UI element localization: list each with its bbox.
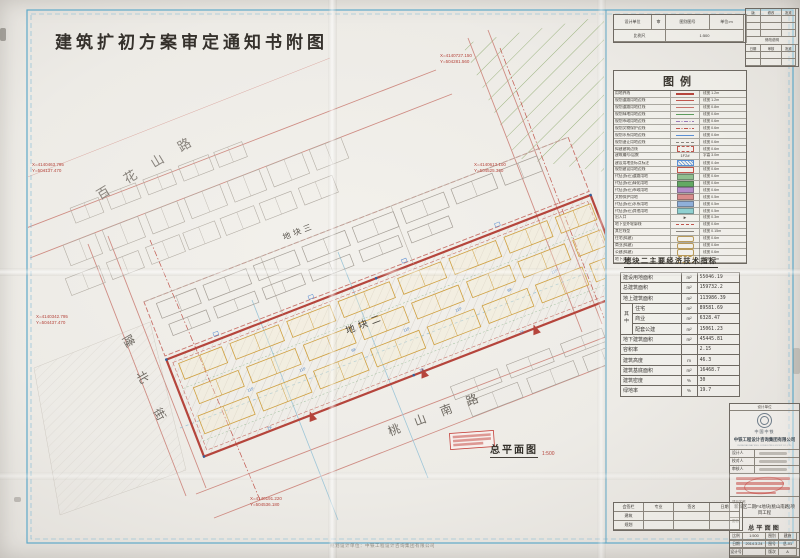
revision-cell <box>761 23 782 30</box>
revision-cell: 修改 <box>761 9 782 16</box>
green-space-hatch <box>462 16 604 172</box>
indicator-unit: m² <box>681 283 697 293</box>
legend-item-spec: 线宽 0.6m <box>700 126 744 131</box>
signoff-cell: 签名 <box>674 503 710 512</box>
signature-row: 设计人 <box>730 450 799 458</box>
map-label: X=4140463.795 <box>32 162 64 167</box>
indicator-row: 地下建筑面积m²45445.81 <box>621 334 740 344</box>
revision-cell: 版 <box>746 9 761 16</box>
legend-swatch <box>670 208 700 214</box>
legend: 图例 用地界线线宽 1.2m规划道路用地边线线宽 1.2m规划道路用地红线线宽 … <box>613 70 747 264</box>
design-unit-label: 设计单位 <box>730 404 799 411</box>
map-label: Y=504137.470 <box>32 168 62 173</box>
revision-table: 版修改批准修改说明日期审核批准 <box>745 8 799 67</box>
legend-swatch <box>670 119 700 125</box>
indicator-value: 46.3 <box>697 355 739 365</box>
signature-rows: 设计人校对人审核人 <box>730 450 799 474</box>
indicator-unit: m² <box>681 293 697 303</box>
signoff-table: 会签栏专业签名日期建筑规划 <box>613 502 743 531</box>
legend-item-spec: 线宽 1.2m <box>700 98 744 103</box>
revision-header: 修改说明 <box>746 37 798 45</box>
revision-row <box>746 16 798 23</box>
scanned-sheet: 百花山路隆北街桃山南路地块三地块二X=4140727.150Y=504281.5… <box>0 0 800 558</box>
legend-swatch: 1F2# <box>670 153 700 159</box>
brand-name: 中国中铁 <box>755 429 775 435</box>
legend-item-spec: 线宽 0.6m <box>700 112 744 117</box>
revision-cell: 批准 <box>782 9 796 16</box>
legend-row: 住宅(拟建)线宽 0.6m <box>614 236 746 243</box>
legend-item-name: 出入口 <box>614 215 670 220</box>
header-cell: 设计单位 <box>614 15 652 30</box>
legend-row: 规划建设用地边线线宽 0.6m <box>614 167 746 174</box>
indicator-unit: m <box>681 355 697 365</box>
map-label: X=4140613.100 <box>474 162 506 167</box>
map-label: Y=504437.470 <box>36 320 66 325</box>
indicator-unit: m² <box>681 365 697 375</box>
legend-swatch <box>670 160 700 167</box>
legend-row: 规划道路用地红线线宽 0.8m <box>614 105 746 112</box>
company-block: 中国中铁 中铁工程设计咨询集团有限公司 CHINA RAILWAY ENG. C… <box>730 411 799 450</box>
map-label: X=4140342.795 <box>36 314 68 319</box>
revision-cell <box>761 59 782 66</box>
indicator-unit: m² <box>681 334 697 344</box>
indicator-label: 建筑高度 <box>621 355 682 365</box>
legend-item-name: 建筑编号/层数 <box>614 153 670 158</box>
legend-row: 规划退让用地边线线宽 0.6m <box>614 139 746 146</box>
legend-row: 代征(拆迁)市政用地线宽 0.6m <box>614 187 746 194</box>
signature-illegible <box>759 468 787 471</box>
map-label: Y=504536.180 <box>250 502 280 507</box>
legend-swatch <box>670 194 700 200</box>
meta-row: 设计号版次A <box>730 549 799 557</box>
plan-scale: 1:500 <box>542 451 555 457</box>
map-label: 百 <box>94 183 113 203</box>
legend-item-spec: 线宽 0.6m <box>700 167 744 172</box>
legend-item-name: 规划建设用地边线 <box>614 167 670 172</box>
revision-cell: 批准 <box>782 45 796 52</box>
map-label: 桃 <box>386 420 403 438</box>
legend-item-name: 规划文物保护边线 <box>614 126 670 131</box>
signoff-row: 建筑 <box>614 512 742 521</box>
indicator-group: 其 中 <box>621 303 633 334</box>
signoff-cell: 建筑 <box>614 512 644 521</box>
meta-row: 日期2014.3.24图号总-01 <box>730 541 799 549</box>
legend-item-name: 代征(拆迁)其他用地 <box>614 209 670 214</box>
legend-item-name: 代征(拆迁)市政用地 <box>614 188 670 193</box>
revision-cell: 审核 <box>761 45 782 52</box>
header-table: 设计单位 审 图别图号 单位:m 比例尺 1:500 <box>613 14 747 43</box>
legend-swatch <box>670 249 700 256</box>
indicator-unit: % <box>681 375 697 385</box>
legend-item-spec: 线宽 0.3m <box>700 215 744 220</box>
signoff-cell <box>710 521 740 530</box>
meta-cell: 2014.3.24 <box>743 541 766 548</box>
indicator-label: 绿地率 <box>621 386 682 396</box>
signoff-cell <box>644 521 674 530</box>
indicator-label: 地下建筑面积 <box>621 334 682 344</box>
indicator-label: 容积率 <box>621 345 682 355</box>
revision-row <box>746 23 798 30</box>
indicator-label: 商业 <box>633 314 681 324</box>
map-label: 山 <box>148 151 167 171</box>
legend-item-spec: 线宽 0.5m <box>700 195 744 200</box>
legend-swatch <box>670 139 700 145</box>
revision-cell <box>746 23 761 30</box>
legend-swatch <box>670 125 700 131</box>
legend-row: 其它线型线宽 0.15m <box>614 229 746 236</box>
indicator-label: 地上建筑面积 <box>621 293 682 303</box>
meta-cell: 日期 <box>730 541 743 548</box>
revision-cell <box>746 16 761 23</box>
signature-row: 校对人 <box>730 458 799 466</box>
signoff-cell <box>710 512 740 521</box>
revision-row <box>746 59 798 66</box>
legend-row: 代征(拆迁)水系用地线宽 0.5m <box>614 201 746 208</box>
legend-swatch <box>670 181 700 187</box>
legend-swatch <box>670 91 700 97</box>
legend-rows: 用地界线线宽 1.2m规划道路用地边线线宽 1.2m规划道路用地红线线宽 0.8… <box>614 91 746 263</box>
indicator-value: 19.7 <box>697 386 739 396</box>
indicator-value: 15061.23 <box>697 324 739 334</box>
legend-swatch <box>670 146 700 152</box>
legend-swatch <box>670 222 700 228</box>
indicator-value: 16468.7 <box>697 365 739 375</box>
indicator-row: 其 中住宅m²89581.69 <box>621 303 740 313</box>
revision-cell <box>761 30 782 37</box>
legend-row: 地下室外轮廓线线宽 0.6m <box>614 222 746 229</box>
signoff-cell <box>674 521 710 530</box>
legend-swatch <box>670 174 700 180</box>
legend-item-name: 其它线型 <box>614 229 670 234</box>
header-cell: 审 <box>652 15 666 30</box>
indicator-unit: m² <box>681 314 697 324</box>
indicator-value: 30 <box>697 375 739 385</box>
legend-item-name: 拟建建筑边线 <box>614 147 670 152</box>
map-label: 路 <box>175 135 194 155</box>
legend-item-spec: 字高 3.0m <box>700 153 744 158</box>
legend-row: 规划道路用地边线线宽 1.2m <box>614 98 746 105</box>
red-approval-stamp <box>449 430 494 449</box>
legend-item-spec: 线宽 0.6m <box>700 119 744 124</box>
signature-illegible <box>759 452 787 455</box>
meta-cell: 图别 <box>766 533 779 540</box>
indicator-row: 建筑密度%30 <box>621 375 740 385</box>
drawing-name: 总平面图 <box>748 523 781 532</box>
indicator-row: 配套公建m²15061.23 <box>621 324 740 334</box>
legend-item-spec: 线宽 1.2m <box>700 91 744 96</box>
legend-item-spec: 线宽 0.5m <box>700 209 744 214</box>
legend-row: 文物保护用地线宽 0.5m <box>614 194 746 201</box>
signoff-cell <box>644 512 674 521</box>
meta-cell: 图号 <box>766 541 779 548</box>
legend-item-spec: 线宽 0.6m <box>700 250 744 255</box>
legend-item-spec: 线宽 0.6m <box>700 174 744 179</box>
signoff-row: 会签栏专业签名日期 <box>614 503 742 512</box>
meta-cell: A <box>779 549 797 556</box>
legend-title: 图例 <box>614 71 746 91</box>
revision-cell <box>746 52 761 59</box>
legend-item-name: 地下室外轮廓线 <box>614 222 670 227</box>
legend-swatch <box>670 201 700 207</box>
indicator-unit <box>681 345 697 355</box>
legend-item-name: 规划市政用地边线 <box>614 119 670 124</box>
legend-swatch <box>670 132 700 138</box>
legend-row: 规划绿地用地边线线宽 0.6m <box>614 112 746 119</box>
legend-item-spec: 线宽 0.6m <box>700 222 744 227</box>
indicator-unit: m² <box>681 303 697 313</box>
legend-row: 建设用地坐标点标注线宽 0.4m <box>614 160 746 167</box>
meta-cell: 1:500 <box>743 533 766 540</box>
signoff-cell: 规划 <box>614 521 644 530</box>
revision-cell <box>746 59 761 66</box>
legend-item-name: 规划道路用地边线 <box>614 98 670 103</box>
legend-item-name: 规划绿地用地边线 <box>614 112 670 117</box>
legend-item-spec: 线宽 0.4m <box>700 161 744 166</box>
company-name: 中铁工程设计咨询集团有限公司 <box>734 437 795 443</box>
legend-item-name: 用地界线 <box>614 91 670 96</box>
legend-row: 代征(拆迁)其他用地线宽 0.5m <box>614 208 746 215</box>
legend-row: 规划市政用地边线线宽 0.6m <box>614 119 746 126</box>
legend-row: 代征(拆迁)绿化用地线宽 0.6m <box>614 181 746 188</box>
signoff-cell: 会签栏 <box>614 503 644 512</box>
legend-item-name: 商业(拟建) <box>614 243 670 248</box>
meta-cell: 比例 <box>730 533 743 540</box>
revision-cell <box>746 30 761 37</box>
legend-item-spec: 线宽 0.6m <box>700 147 744 152</box>
signoff-cell <box>674 512 710 521</box>
legend-item-spec: 线宽 0.6m <box>700 188 744 193</box>
map-label: 山 <box>412 411 428 428</box>
indicator-row: 商业m²6328.47 <box>621 314 740 324</box>
indicator-row: 总建筑面积m²159732.2 <box>621 283 740 293</box>
indicators-table: 建设用地面积m²55046.19总建筑面积m²159732.2地上建筑面积m²1… <box>620 272 740 397</box>
revision-cell <box>782 23 796 30</box>
indicator-label: 建筑密度 <box>621 375 682 385</box>
indicator-value: 113986.39 <box>697 293 739 303</box>
indicator-value: 2.15 <box>697 345 739 355</box>
indicator-label: 建筑基底面积 <box>621 365 682 375</box>
scale-label: 比例尺 <box>614 30 666 42</box>
revision-cell <box>782 30 796 37</box>
map-label: 路 <box>464 390 481 408</box>
legend-row: 出入口►线宽 0.3m <box>614 215 746 222</box>
legend-item-name: 规划退让用地边线 <box>614 140 670 145</box>
signature-illegible <box>759 460 787 463</box>
map-label: 南 <box>438 400 455 418</box>
revision-cell: 日期 <box>746 45 761 52</box>
indicator-unit: m² <box>681 324 697 334</box>
legend-item-name: 建设用地坐标点标注 <box>614 161 670 166</box>
indicator-row: 容积率2.15 <box>621 345 740 355</box>
meta-rows: 比例1:500图别建施日期2014.3.24图号总-01设计号版次A <box>730 533 799 557</box>
revision-cell <box>761 16 782 23</box>
legend-item-spec: 线宽 0.5m <box>700 202 744 207</box>
company-logo-icon <box>757 413 772 428</box>
revision-row <box>746 30 798 37</box>
legend-row: 规划水系用地边线线宽 0.6m <box>614 132 746 139</box>
plan-caption-text: 总平面图 <box>490 441 538 458</box>
legend-item-spec: 线宽 0.6m <box>700 181 744 186</box>
meta-cell: 建施 <box>779 533 797 540</box>
legend-item-spec: 线宽 0.6m <box>700 140 744 145</box>
legend-item-spec: 线宽 0.8m <box>700 105 744 110</box>
legend-row: 代征(拆迁)道路用地线宽 0.6m <box>614 174 746 181</box>
legend-item-spec: 线宽 0.6m <box>700 243 744 248</box>
legend-swatch <box>670 236 700 243</box>
footnote: 规划设计单位：中铁工程设计咨询集团有限公司 <box>330 543 435 549</box>
legend-swatch <box>670 112 700 118</box>
map-label: Y=504525.360 <box>474 168 504 173</box>
scale-value: 1:500 <box>666 30 744 42</box>
legend-item-name: 代征(拆迁)绿化用地 <box>614 181 670 186</box>
legend-item-spec: 线宽 0.15m <box>700 229 744 234</box>
fold-crease <box>0 472 800 480</box>
scan-smudge <box>793 348 800 374</box>
legend-item-name: 代征(拆迁)道路用地 <box>614 174 670 179</box>
indicators-title: 地块二主要经济技术指标 <box>624 256 718 268</box>
plan-caption: 总平面图 1:500 <box>490 441 555 458</box>
header-cell: 图别图号 <box>666 15 710 30</box>
indicator-row: 绿地率%19.7 <box>621 386 740 396</box>
meta-cell <box>743 549 766 556</box>
revision-row: 日期审核批准 <box>746 45 798 52</box>
header-cell: 单位:m <box>710 15 744 30</box>
legend-row: 拟建建筑边线线宽 0.6m <box>614 146 746 153</box>
legend-row: 商业(拟建)线宽 0.6m <box>614 243 746 250</box>
indicator-value: 89581.69 <box>697 303 739 313</box>
indicator-value: 6328.47 <box>697 314 739 324</box>
legend-swatch <box>670 243 700 250</box>
revision-cell <box>761 52 782 59</box>
signoff-row: 规划 <box>614 521 742 530</box>
signature-label: 设计人 <box>730 450 755 457</box>
meta-cell: 设计号 <box>730 549 743 556</box>
legend-item-name: 文物保护用地 <box>614 195 670 200</box>
legend-item-name: 规划道路用地红线 <box>614 105 670 110</box>
meta-cell: 总-01 <box>779 541 797 548</box>
legend-item-spec: 线宽 0.6m <box>700 133 744 138</box>
legend-swatch <box>670 105 700 111</box>
legend-item-name: 规划水系用地边线 <box>614 133 670 138</box>
legend-swatch <box>670 187 700 193</box>
indicator-row: 建筑基底面积m²16468.7 <box>621 365 740 375</box>
map-label: 花 <box>121 167 140 187</box>
legend-item-name: 公建(拟建) <box>614 250 670 255</box>
legend-row: 规划文物保护边线线宽 0.6m <box>614 125 746 132</box>
scan-smudge <box>14 497 21 502</box>
revision-cell <box>782 16 796 23</box>
map-label: Y=504281.560 <box>440 59 470 64</box>
legend-row: 用地界线线宽 1.2m <box>614 91 746 98</box>
legend-item-spec: 线宽 0.6m <box>700 236 744 241</box>
page-title: 建筑扩初方案审定通知书附图 <box>55 28 328 53</box>
revision-row <box>746 52 798 59</box>
legend-item-name: 住宅(拟建) <box>614 236 670 241</box>
legend-swatch: ► <box>670 215 700 221</box>
revision-cell <box>782 59 796 66</box>
legend-swatch <box>670 229 700 235</box>
indicator-value: 159732.2 <box>697 283 739 293</box>
legend-swatch <box>670 167 700 173</box>
legend-item-name: 代征(拆迁)水系用地 <box>614 202 670 207</box>
indicator-label: 总建筑面积 <box>621 283 682 293</box>
signoff-cell: 专业 <box>644 503 674 512</box>
map-label: X=4140727.150 <box>440 53 472 58</box>
indicator-value: 45445.81 <box>697 334 739 344</box>
legend-row: 建筑编号/层数1F2#字高 3.0m <box>614 153 746 160</box>
map-label: 地块三 <box>281 221 315 242</box>
meta-row: 比例1:500图别建施 <box>730 533 799 541</box>
revision-row: 版修改批准 <box>746 9 798 16</box>
indicator-label: 配套公建 <box>633 324 681 334</box>
meta-cell: 版次 <box>766 549 779 556</box>
map-label: X=4140191.220 <box>250 496 282 501</box>
scan-smudge <box>0 28 6 41</box>
title-block: 设计单位 中国中铁 中铁工程设计咨询集团有限公司 CHINA RAILWAY E… <box>729 403 800 558</box>
indicator-label: 住宅 <box>633 303 681 313</box>
revision-cell <box>782 52 796 59</box>
indicator-row: 建筑高度m46.3 <box>621 355 740 365</box>
legend-swatch <box>670 98 700 104</box>
signoff-cell: 日期 <box>710 503 740 512</box>
indicator-row: 地上建筑面积m²113986.39 <box>621 293 740 303</box>
company-name-en: CHINA RAILWAY ENG. CONSULTING GROUP CO.,… <box>737 444 792 447</box>
fold-crease <box>0 268 800 276</box>
indicator-unit: % <box>681 386 697 396</box>
signature-label: 校对人 <box>730 458 755 465</box>
